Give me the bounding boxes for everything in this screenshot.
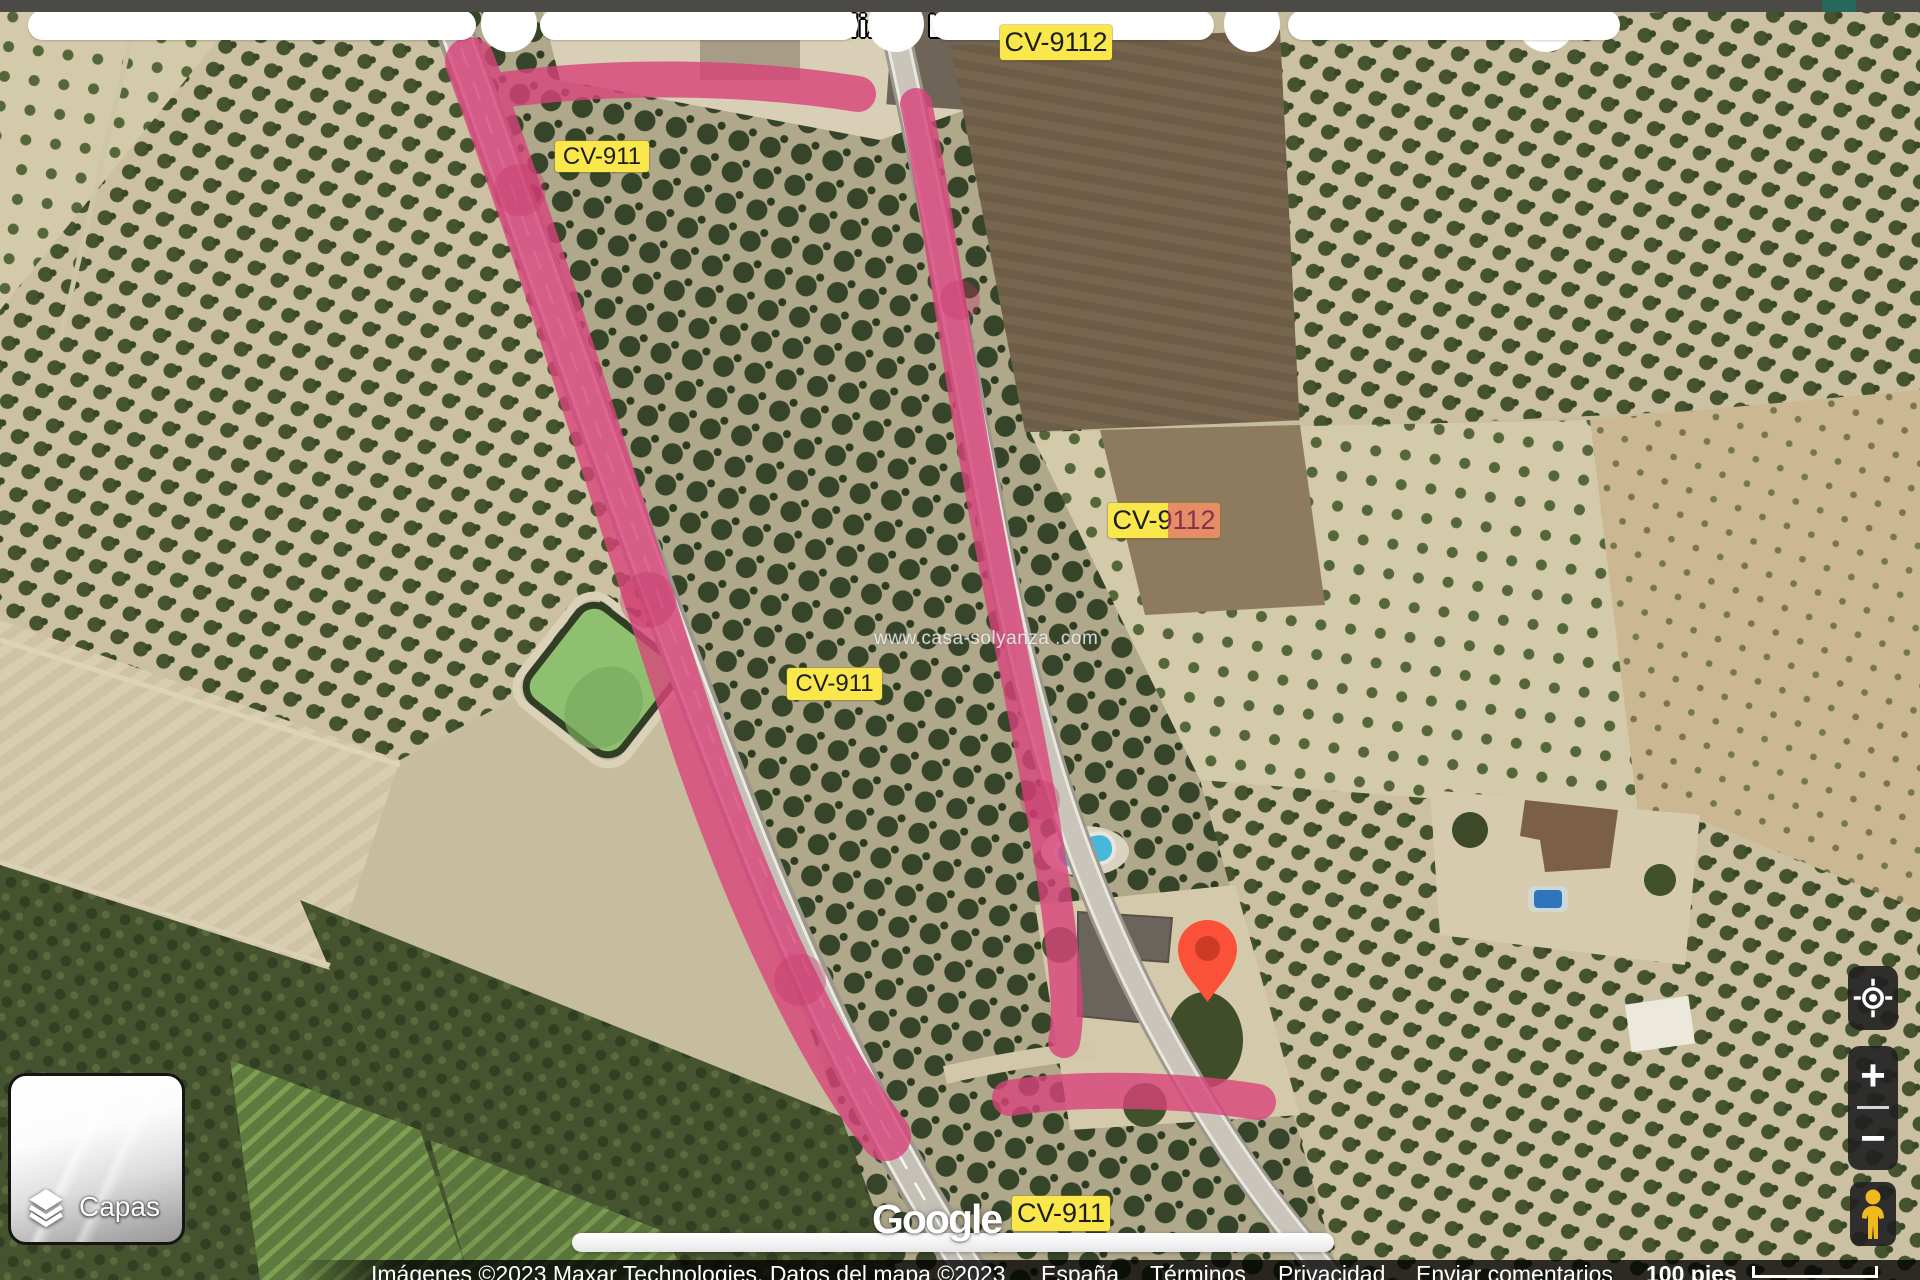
road-badge-cv9112-mid: CV-9112 — [1108, 503, 1220, 538]
browser-tab[interactable] — [28, 10, 476, 40]
neighbor-pool — [1534, 890, 1562, 908]
road-badge-cv911-top: CV-911 — [555, 141, 649, 172]
browser-tab-strip — [0, 0, 1920, 12]
imagery-attribution: Imágenes ©2023 Maxar Technologies, Datos… — [371, 1261, 1005, 1280]
zoom-out-button[interactable]: − — [1848, 1109, 1898, 1169]
link-privacidad[interactable]: Privacidad — [1278, 1261, 1385, 1280]
tab-row — [0, 10, 1920, 56]
layers-label: Capas — [79, 1191, 160, 1223]
scale-label: 100 pies — [1646, 1261, 1737, 1280]
layers-control[interactable]: Capas — [8, 1073, 185, 1245]
watermark: www.casa-solyanza .com — [874, 628, 1098, 650]
zoom-control: + − — [1848, 1046, 1898, 1170]
link-terminos[interactable]: Términos — [1150, 1261, 1246, 1280]
road-badge-cv911-bottom: CV-911 — [1012, 1196, 1110, 1231]
browser-tab[interactable] — [540, 10, 858, 40]
layers-icon — [25, 1186, 67, 1228]
attribution-bar: Imágenes ©2023 Maxar Technologies, Datos… — [290, 1260, 1920, 1280]
my-location-icon — [1852, 977, 1894, 1019]
link-espana[interactable]: España — [1041, 1261, 1119, 1280]
road-badge-cv9112-top: CV-9112 — [1000, 25, 1112, 60]
my-location-button[interactable] — [1848, 966, 1898, 1030]
road-badge-cv911-mid: CV-911 — [787, 668, 882, 700]
pegman-button[interactable] — [1850, 1182, 1896, 1246]
zoom-in-button[interactable]: + — [1848, 1046, 1898, 1106]
link-enviar-comentarios[interactable]: Enviar comentarios — [1416, 1261, 1613, 1280]
browser-tab[interactable] — [1288, 10, 1620, 40]
google-logo: Google — [872, 1196, 1001, 1243]
tab-strip-accent — [1822, 0, 1856, 12]
pegman-icon — [1856, 1188, 1890, 1240]
maps-viewport: Hortalizas Lati www.casa-solyanza .com C… — [0, 0, 1920, 1280]
scale-bar — [1752, 1266, 1878, 1278]
route-highlight-over-badge — [1168, 503, 1220, 538]
